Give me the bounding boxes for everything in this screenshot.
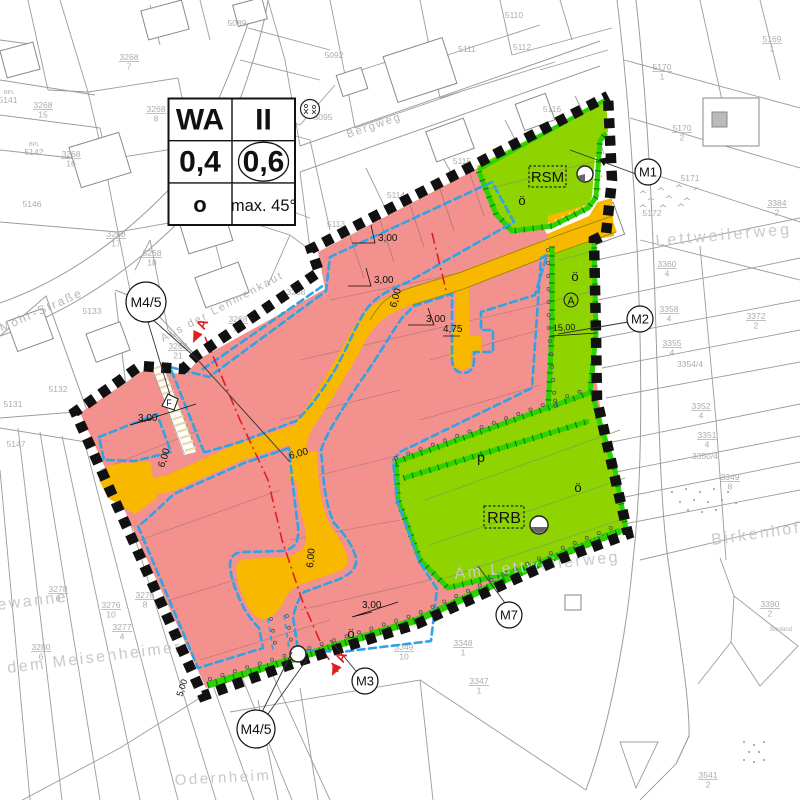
- svg-text:3,00: 3,00: [374, 275, 394, 286]
- svg-text:17: 17: [111, 239, 121, 249]
- svg-text:3268: 3268: [143, 248, 162, 258]
- svg-text:RRB: RRB: [487, 510, 521, 527]
- svg-text:RSM: RSM: [531, 169, 564, 186]
- svg-text:3354/4: 3354/4: [677, 359, 703, 369]
- svg-text:3355: 3355: [663, 338, 682, 348]
- svg-text:5170: 5170: [653, 62, 672, 72]
- svg-text:5146: 5146: [23, 199, 42, 209]
- svg-text:5131: 5131: [4, 399, 23, 409]
- svg-text:1: 1: [461, 648, 466, 658]
- svg-text:2: 2: [754, 321, 759, 331]
- svg-text:2: 2: [768, 609, 773, 619]
- svg-text:3,00: 3,00: [378, 233, 398, 244]
- svg-text:1: 1: [770, 44, 775, 54]
- svg-text:M2: M2: [631, 312, 649, 327]
- svg-text:3351: 3351: [698, 430, 717, 440]
- svg-text:5116: 5116: [543, 104, 562, 114]
- svg-text:7: 7: [127, 62, 132, 72]
- svg-text:3268: 3268: [107, 229, 126, 239]
- svg-text:5089: 5089: [228, 18, 247, 28]
- svg-text:5133: 5133: [83, 306, 102, 316]
- svg-text:M4/5: M4/5: [240, 721, 271, 737]
- svg-text:4: 4: [120, 632, 125, 642]
- svg-text:ö: ö: [571, 269, 578, 284]
- svg-text:3268: 3268: [34, 100, 53, 110]
- svg-text:5111: 5111: [458, 44, 476, 54]
- svg-text:5092: 5092: [325, 50, 344, 60]
- svg-text:Bouland: Bouland: [770, 627, 792, 633]
- svg-text:3372: 3372: [747, 311, 766, 321]
- svg-text:0,6: 0,6: [243, 146, 285, 179]
- svg-text:BPL: BPL: [29, 142, 39, 148]
- svg-text:M7: M7: [500, 608, 518, 623]
- svg-text:8: 8: [143, 600, 148, 610]
- svg-text:3,00: 3,00: [362, 600, 382, 611]
- svg-text:F: F: [166, 398, 172, 408]
- svg-text:A: A: [567, 296, 575, 308]
- svg-text:2: 2: [680, 133, 685, 143]
- svg-text:4,75: 4,75: [443, 324, 463, 335]
- svg-text:10: 10: [399, 652, 409, 662]
- svg-text:6,00: 6,00: [305, 547, 318, 568]
- svg-text:5142: 5142: [25, 147, 44, 157]
- svg-text:WA: WA: [176, 104, 224, 137]
- svg-text:3276: 3276: [102, 600, 121, 610]
- svg-text:21: 21: [173, 351, 183, 361]
- svg-text:10: 10: [106, 610, 116, 620]
- svg-text:3268: 3268: [62, 149, 81, 159]
- svg-text:3384: 3384: [768, 198, 787, 208]
- svg-text:1: 1: [660, 72, 665, 82]
- svg-text:M1: M1: [639, 165, 657, 180]
- svg-text:5171: 5171: [681, 173, 700, 183]
- svg-text:8: 8: [728, 482, 733, 492]
- svg-text:max. 45°: max. 45°: [231, 197, 296, 215]
- svg-text:II: II: [255, 104, 272, 137]
- svg-text:5110: 5110: [505, 10, 524, 20]
- svg-text:3358: 3358: [660, 304, 679, 314]
- svg-text:3277: 3277: [113, 622, 132, 632]
- svg-text:4: 4: [670, 348, 675, 358]
- svg-text:o: o: [193, 192, 206, 217]
- svg-text:4: 4: [665, 269, 670, 279]
- svg-text:8: 8: [154, 114, 159, 124]
- svg-text:3541: 3541: [699, 770, 718, 780]
- svg-text:5172: 5172: [643, 208, 662, 218]
- svg-text:ö: ö: [347, 626, 354, 641]
- svg-text:3390: 3390: [761, 599, 780, 609]
- svg-text:3268: 3268: [120, 52, 139, 62]
- svg-text:5147: 5147: [7, 439, 26, 449]
- svg-text:5170: 5170: [673, 123, 692, 133]
- svg-text:ö: ö: [518, 193, 525, 208]
- svg-text:0,4: 0,4: [179, 146, 221, 179]
- svg-text:M4/5: M4/5: [130, 294, 161, 310]
- svg-text:3280: 3280: [32, 642, 51, 652]
- svg-text:2: 2: [775, 208, 780, 218]
- svg-text:ö: ö: [574, 480, 581, 495]
- svg-text:1: 1: [477, 686, 482, 696]
- svg-text:M3: M3: [356, 674, 374, 689]
- svg-text:2: 2: [706, 780, 711, 790]
- svg-text:15: 15: [38, 110, 48, 120]
- svg-text:3360: 3360: [658, 259, 677, 269]
- svg-text:4: 4: [699, 411, 704, 421]
- svg-text:16: 16: [66, 159, 76, 169]
- svg-text:3350/4: 3350/4: [692, 451, 718, 461]
- svg-text:3347: 3347: [470, 676, 489, 686]
- svg-text:3349: 3349: [721, 472, 740, 482]
- svg-text:5169: 5169: [763, 34, 782, 44]
- svg-text:5141: 5141: [0, 95, 18, 105]
- svg-text:15,00: 15,00: [553, 322, 576, 333]
- svg-text:18: 18: [147, 258, 157, 268]
- svg-text:3348: 3348: [454, 638, 473, 648]
- svg-text:5132: 5132: [49, 384, 68, 394]
- svg-text:p: p: [477, 449, 485, 465]
- svg-text:BPL: BPL: [4, 90, 14, 96]
- svg-text:4: 4: [667, 314, 672, 324]
- svg-text:3278: 3278: [49, 584, 68, 594]
- svg-text:6: 6: [39, 652, 44, 662]
- svg-text:3352: 3352: [692, 401, 711, 411]
- svg-text:5112: 5112: [513, 42, 532, 52]
- svg-text:3268: 3268: [147, 104, 166, 114]
- svg-text:4: 4: [705, 440, 710, 450]
- svg-text:6: 6: [56, 594, 61, 604]
